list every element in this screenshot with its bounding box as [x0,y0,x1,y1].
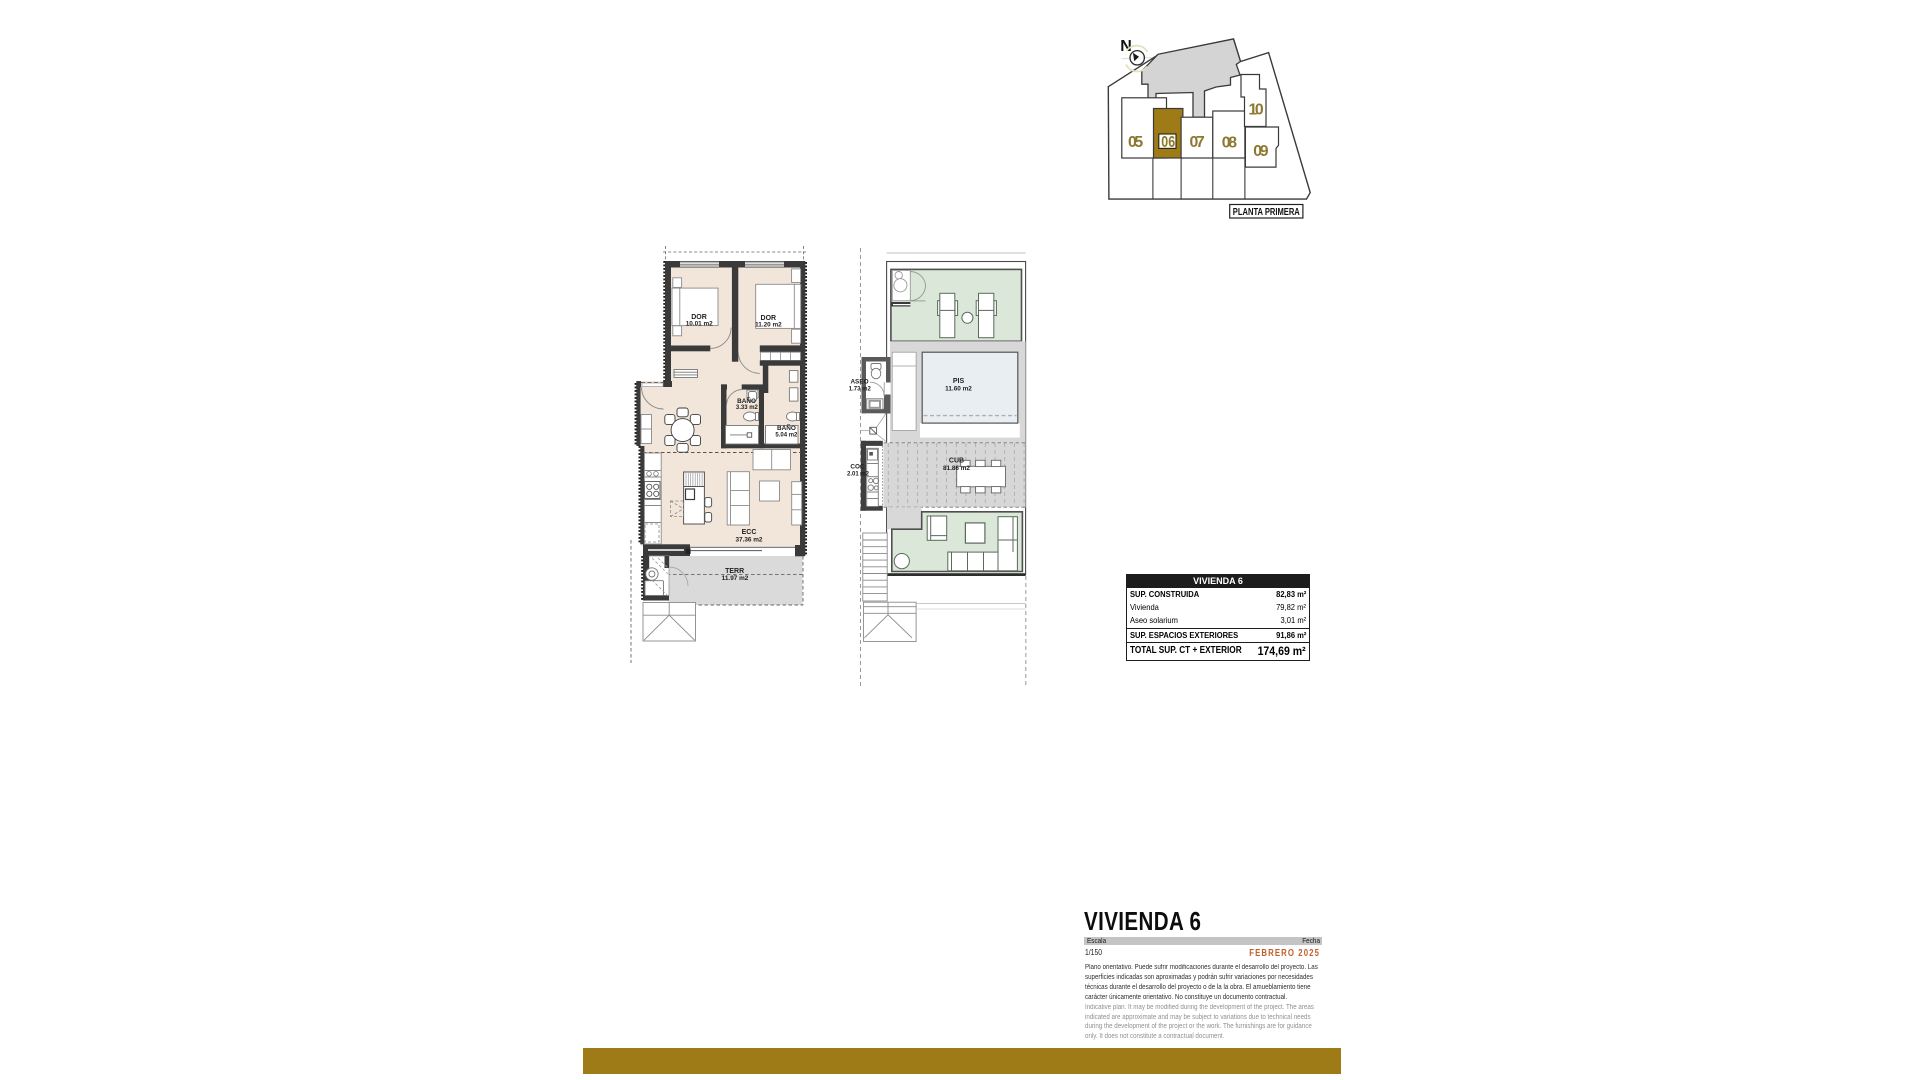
svg-text:10: 10 [1249,102,1264,119]
svg-text:BAÑO: BAÑO [737,396,756,405]
svg-text:ASEO: ASEO [850,379,868,386]
svg-text:TERR: TERR [725,568,744,575]
svg-text:11.20 m2: 11.20 m2 [755,322,782,329]
svg-text:BAÑO: BAÑO [777,423,796,432]
svg-text:3.33 m2: 3.33 m2 [736,405,759,411]
svg-text:PLANTA PRIMERA: PLANTA PRIMERA [1233,207,1300,218]
svg-text:06: 06 [1161,134,1175,151]
svg-text:05: 05 [1128,134,1143,151]
svg-text:5.04 m2: 5.04 m2 [775,432,798,438]
svg-text:CUB: CUB [949,458,964,465]
svg-text:COC: COC [850,464,865,471]
svg-text:PIS: PIS [953,378,965,385]
svg-text:2.01 m2: 2.01 m2 [847,472,870,478]
svg-text:1.73 m2: 1.73 m2 [849,387,872,393]
svg-text:ECC: ECC [742,529,757,536]
svg-text:37.36 m2: 37.36 m2 [735,536,762,543]
svg-text:10.01 m2: 10.01 m2 [686,320,713,327]
svg-text:81.86 m2: 81.86 m2 [943,465,970,472]
svg-text:11.97 m2: 11.97 m2 [722,575,749,582]
svg-text:07: 07 [1190,134,1205,151]
svg-text:11.60 m2: 11.60 m2 [945,385,972,392]
svg-text:09: 09 [1253,143,1268,160]
svg-text:08: 08 [1222,134,1237,151]
